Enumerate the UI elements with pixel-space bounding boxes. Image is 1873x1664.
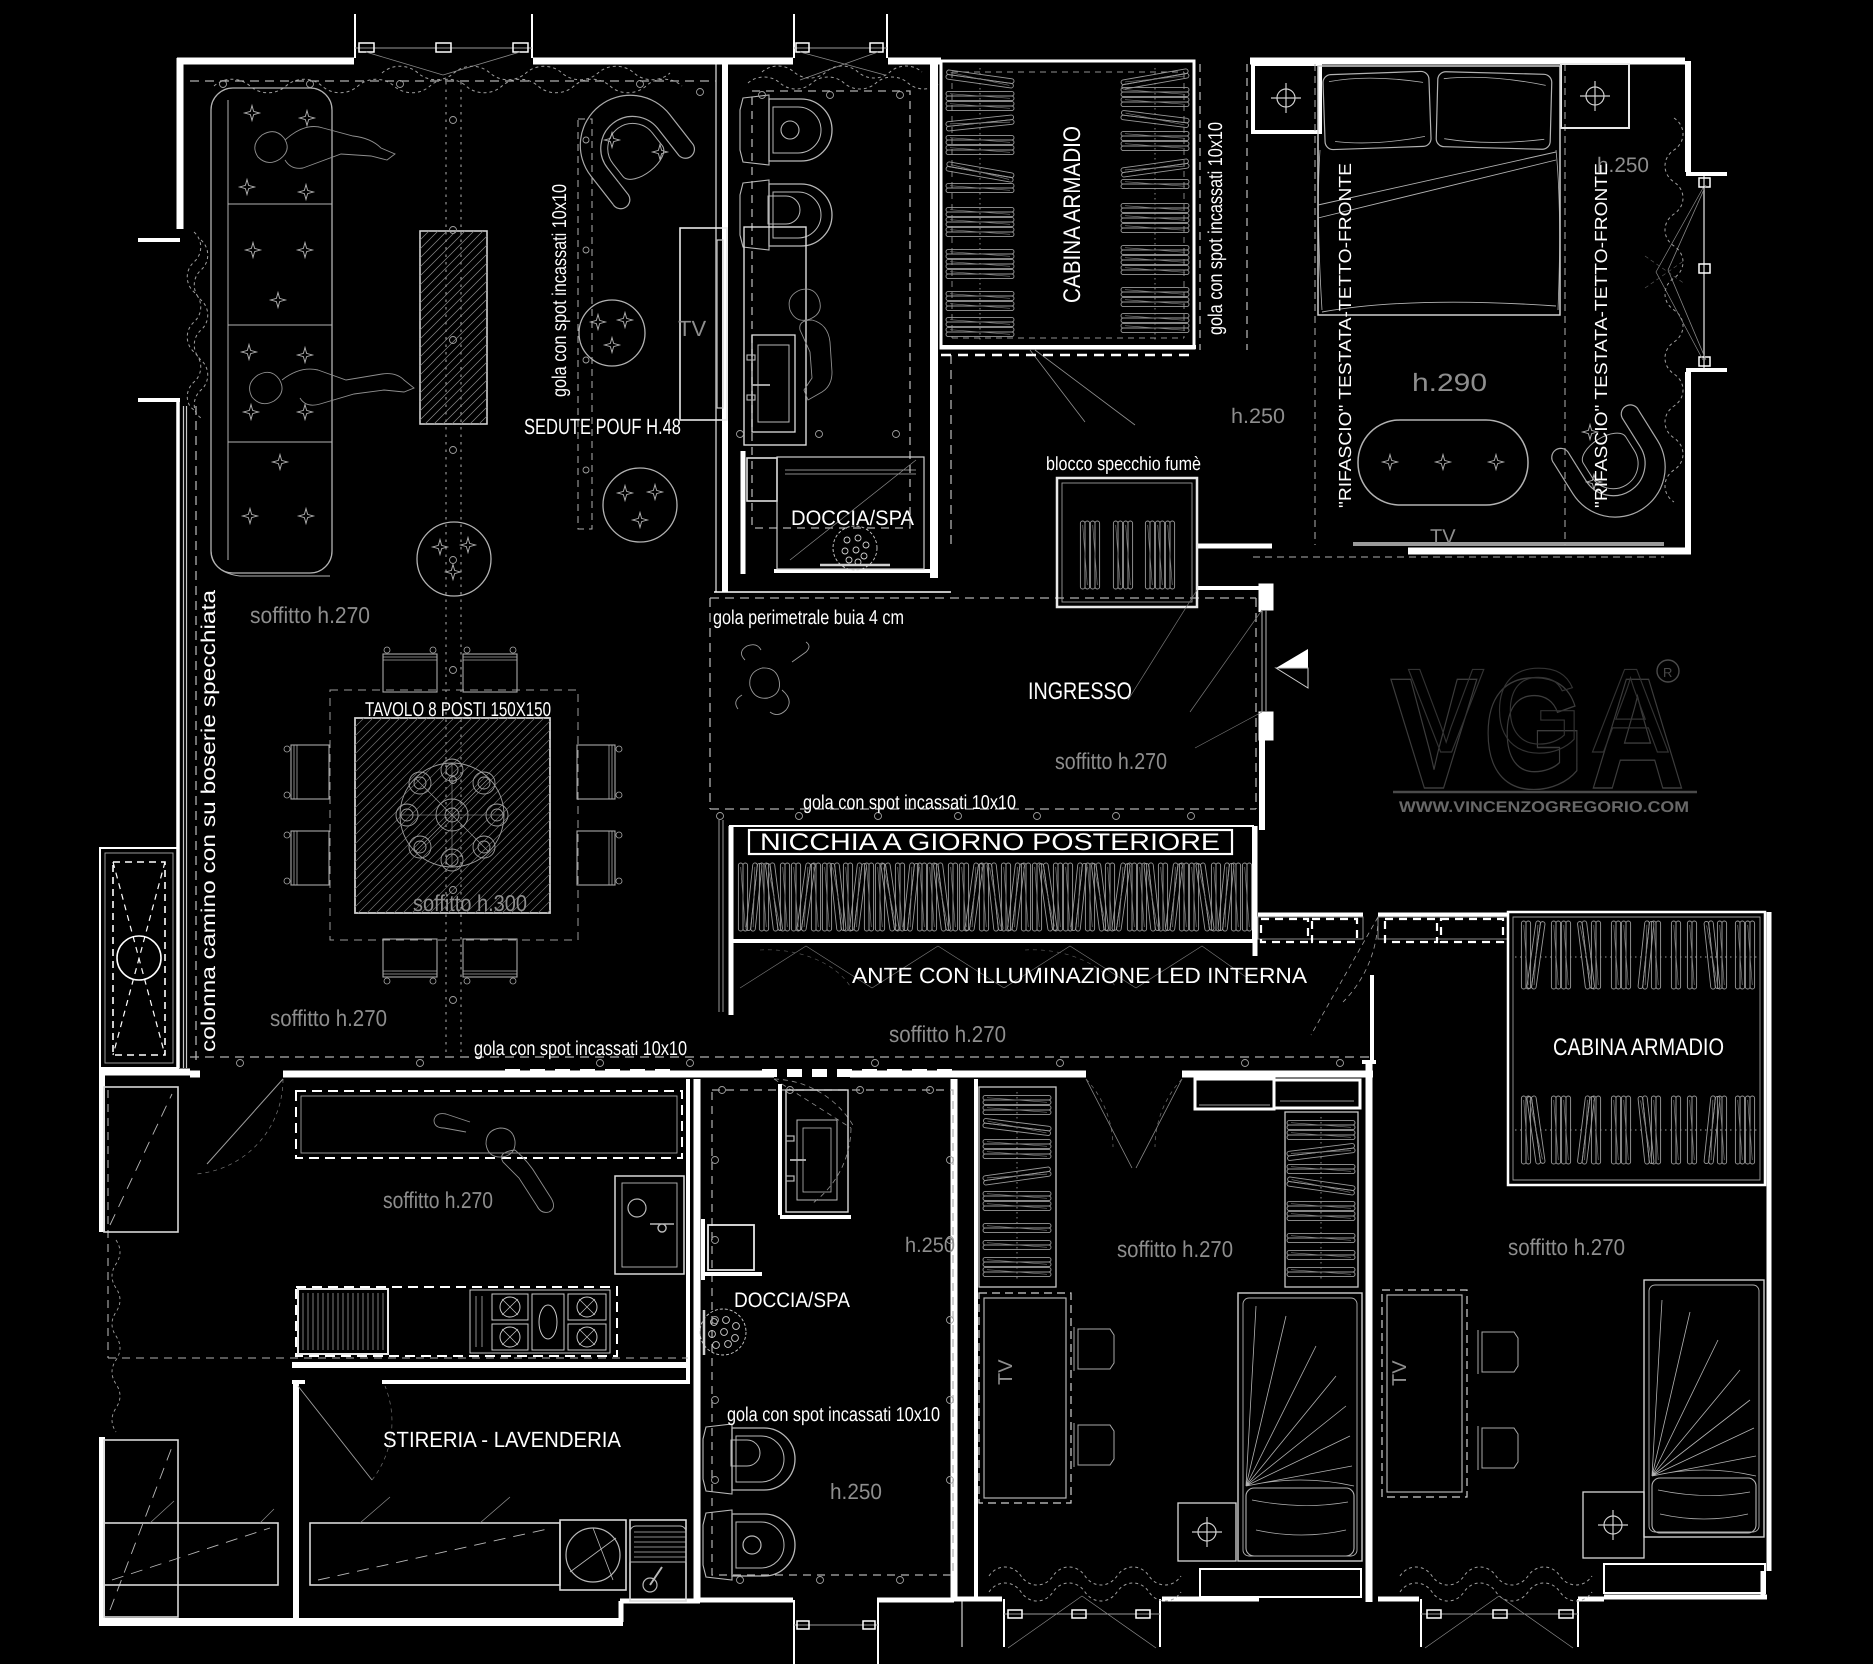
svg-text:h.250: h.250 [905,1234,955,1257]
svg-text:DOCCIA/SPA: DOCCIA/SPA [791,507,914,530]
svg-text:"RIFASCIO" TESTATA-TETTO-FRONT: "RIFASCIO" TESTATA-TETTO-FRONTE [1335,163,1355,508]
svg-text:gola con spot incassati 10x10: gola con spot incassati 10x10 [474,1038,687,1060]
svg-text:TV: TV [1430,526,1456,548]
svg-text:SEDUTE POUF H.48: SEDUTE POUF H.48 [524,414,681,439]
svg-text:ANTE CON ILLUMINAZIONE LED IN: ANTE CON ILLUMINAZIONE LED INTERNA [852,963,1307,988]
svg-text:WWW.VINCENZOGREGORIO.COM: WWW.VINCENZOGREGORIO.COM [1399,799,1689,816]
svg-text:gola con spot incassati 10x10: gola con spot incassati 10x10 [803,792,1016,814]
svg-text:STIRERIA - LAVENDERIA: STIRERIA - LAVENDERIA [383,1427,621,1452]
svg-text:gola con spot incassati 10x10: gola con spot incassati 10x10 [727,1404,940,1426]
svg-text:R: R [1663,665,1672,680]
svg-text:blocco specchio fumè: blocco specchio fumè [1046,454,1201,475]
svg-text:TV: TV [995,1359,1017,1385]
svg-text:TV: TV [1389,1360,1411,1386]
svg-text:soffitto h.270: soffitto h.270 [383,1187,493,1213]
svg-text:TV: TV [678,316,706,341]
svg-text:h.250: h.250 [830,1479,882,1504]
svg-text:DOCCIA/SPA: DOCCIA/SPA [734,1289,850,1312]
svg-text:soffitto h.270: soffitto h.270 [1055,748,1167,774]
svg-text:TAVOLO 8 POSTI 150X150: TAVOLO 8 POSTI 150X150 [365,699,551,721]
svg-text:gola con spot incassati 10x10: gola con spot incassati 10x10 [1205,122,1227,335]
svg-text:colonna camino con su boserie: colonna camino con su boserie specchiata [198,589,220,1052]
svg-text:soffitto h.270: soffitto h.270 [889,1021,1006,1047]
svg-text:CABINA ARMADIO: CABINA ARMADIO [1553,1034,1724,1061]
svg-text:soffitto h.270: soffitto h.270 [250,602,370,628]
svg-text:soffitto h.270: soffitto h.270 [1508,1234,1625,1260]
svg-text:NICCHIA A GIORNO POSTERIORE: NICCHIA A GIORNO POSTERIORE [760,829,1220,856]
svg-text:VGA: VGA [1408,644,1678,778]
svg-text:h.290: h.290 [1412,369,1487,397]
svg-text:INGRESSO: INGRESSO [1028,678,1132,705]
svg-text:gola con spot incassati 10x10: gola con spot incassati 10x10 [549,184,571,397]
svg-text:soffitto h.270: soffitto h.270 [1117,1236,1233,1262]
svg-text:"RIFASCIO" TESTATA-TETTO-FRONT: "RIFASCIO" TESTATA-TETTO-FRONTE [1591,163,1611,508]
svg-text:soffitto h.270: soffitto h.270 [270,1005,387,1031]
svg-text:CABINA ARMADIO: CABINA ARMADIO [1059,126,1086,303]
svg-text:gola perimetrale buia 4 cm: gola perimetrale buia 4 cm [713,607,904,629]
svg-text:soffitto h.300: soffitto h.300 [413,890,527,916]
svg-text:h.250: h.250 [1231,405,1285,428]
